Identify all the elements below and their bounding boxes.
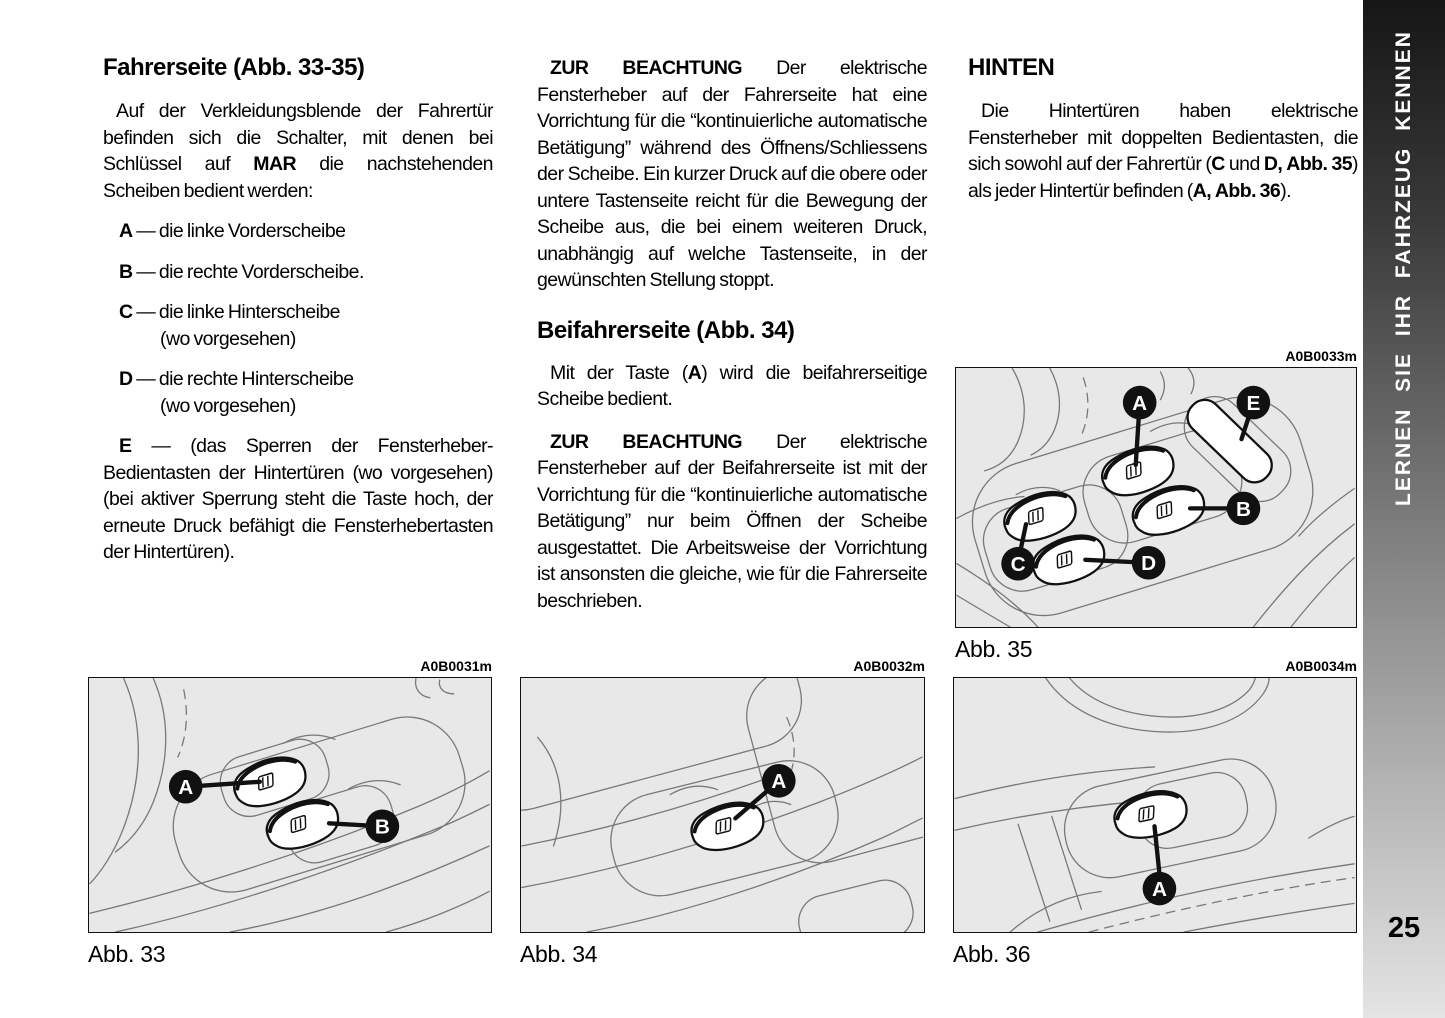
figure-frame: A B bbox=[88, 677, 492, 933]
figure-code: A0B0033m bbox=[955, 348, 1357, 364]
figure-code: A0B0031m bbox=[88, 658, 492, 674]
page-number: 25 bbox=[1363, 912, 1445, 945]
window-switch-a bbox=[1110, 786, 1190, 844]
callout-d: D bbox=[1132, 546, 1166, 580]
figure-caption: Abb. 34 bbox=[520, 941, 925, 968]
chapter-title-vertical: LERNEN SIE IHR FAHRZEUG KENNEN bbox=[1363, 52, 1445, 484]
callout-c: C bbox=[1001, 547, 1035, 581]
figure-caption: Abb. 36 bbox=[953, 941, 1357, 968]
column-driver-side: Fahrerseite (Abb. 33-35) Auf der Verklei… bbox=[103, 55, 493, 566]
door-panel-drawing: A bbox=[521, 678, 923, 932]
list-item-a: A — die linke Vorderscheibe bbox=[103, 218, 493, 245]
callout-a: A bbox=[1143, 872, 1177, 906]
figure-code: A0B0034m bbox=[953, 658, 1357, 674]
figure-abb-34: A0B0032m bbox=[520, 658, 925, 968]
svg-text:B: B bbox=[375, 816, 390, 839]
heading-beifahrerseite: Beifahrerseite (Abb. 34) bbox=[537, 318, 927, 344]
list-item-d: D — die rechte Hinterscheibe (wo vorgese… bbox=[103, 366, 493, 419]
svg-text:A: A bbox=[771, 770, 786, 793]
svg-text:D: D bbox=[1141, 552, 1156, 575]
svg-text:A: A bbox=[1132, 392, 1147, 415]
callout-a: A bbox=[169, 770, 203, 804]
svg-text:C: C bbox=[1011, 553, 1026, 576]
figure-frame: A bbox=[520, 677, 925, 933]
figure-abb-36: A0B0034m bbox=[953, 658, 1357, 968]
heading-hinten: HINTEN bbox=[968, 55, 1358, 81]
callout-e: E bbox=[1237, 386, 1271, 420]
heading-fahrerseite: Fahrerseite (Abb. 33-35) bbox=[103, 55, 493, 81]
figure-caption: Abb. 33 bbox=[88, 941, 492, 968]
callout-b: B bbox=[366, 809, 400, 843]
figure-frame: A bbox=[953, 677, 1357, 933]
paragraph-passenger: Mit der Taste (A) wird die beifahrerseit… bbox=[537, 360, 927, 413]
callout-a: A bbox=[762, 764, 796, 798]
list-item-b: B — die rechte Vorderscheibe. bbox=[103, 259, 493, 286]
paragraph-note-passenger: ZUR BEACHTUNG Der elektrische Fensterheb… bbox=[537, 429, 927, 615]
list-item-c: C — die linke Hinterscheibe (wo vorgeseh… bbox=[103, 299, 493, 352]
svg-text:A: A bbox=[1152, 878, 1167, 901]
figure-frame: A E B C D bbox=[955, 367, 1357, 628]
paragraph-note-driver: ZUR BEACHTUNG Der elektrische Fensterheb… bbox=[537, 55, 927, 294]
column-passenger-side: ZUR BEACHTUNG Der elektrische Fensterheb… bbox=[537, 55, 927, 614]
door-panel-drawing: A E B C D bbox=[956, 368, 1355, 627]
column-rear: HINTEN Die Hintertüren haben elektrische… bbox=[968, 55, 1358, 204]
list-item-e: E — (das Sperren der Fensterheber-Bedien… bbox=[103, 433, 493, 566]
door-panel-drawing: A B bbox=[89, 678, 490, 932]
paragraph-intro: Auf der Verkleidungsblende der Fahrertür… bbox=[103, 98, 493, 204]
figure-abb-35: A0B0033m bbox=[955, 348, 1357, 663]
paragraph-rear: Die Hintertüren haben elektrische Fenste… bbox=[968, 98, 1358, 204]
callout-a: A bbox=[1123, 386, 1157, 420]
svg-text:E: E bbox=[1246, 392, 1260, 415]
figure-abb-33: A0B0031m bbox=[88, 658, 492, 968]
door-panel-drawing: A bbox=[954, 678, 1355, 932]
svg-text:B: B bbox=[1236, 498, 1251, 521]
manual-page: Fahrerseite (Abb. 33-35) Auf der Verklei… bbox=[0, 0, 1445, 1018]
chapter-sidebar: LERNEN SIE IHR FAHRZEUG KENNEN 25 bbox=[1363, 0, 1445, 1018]
figure-code: A0B0032m bbox=[520, 658, 925, 674]
svg-text:A: A bbox=[178, 776, 193, 799]
callout-b: B bbox=[1227, 492, 1261, 526]
